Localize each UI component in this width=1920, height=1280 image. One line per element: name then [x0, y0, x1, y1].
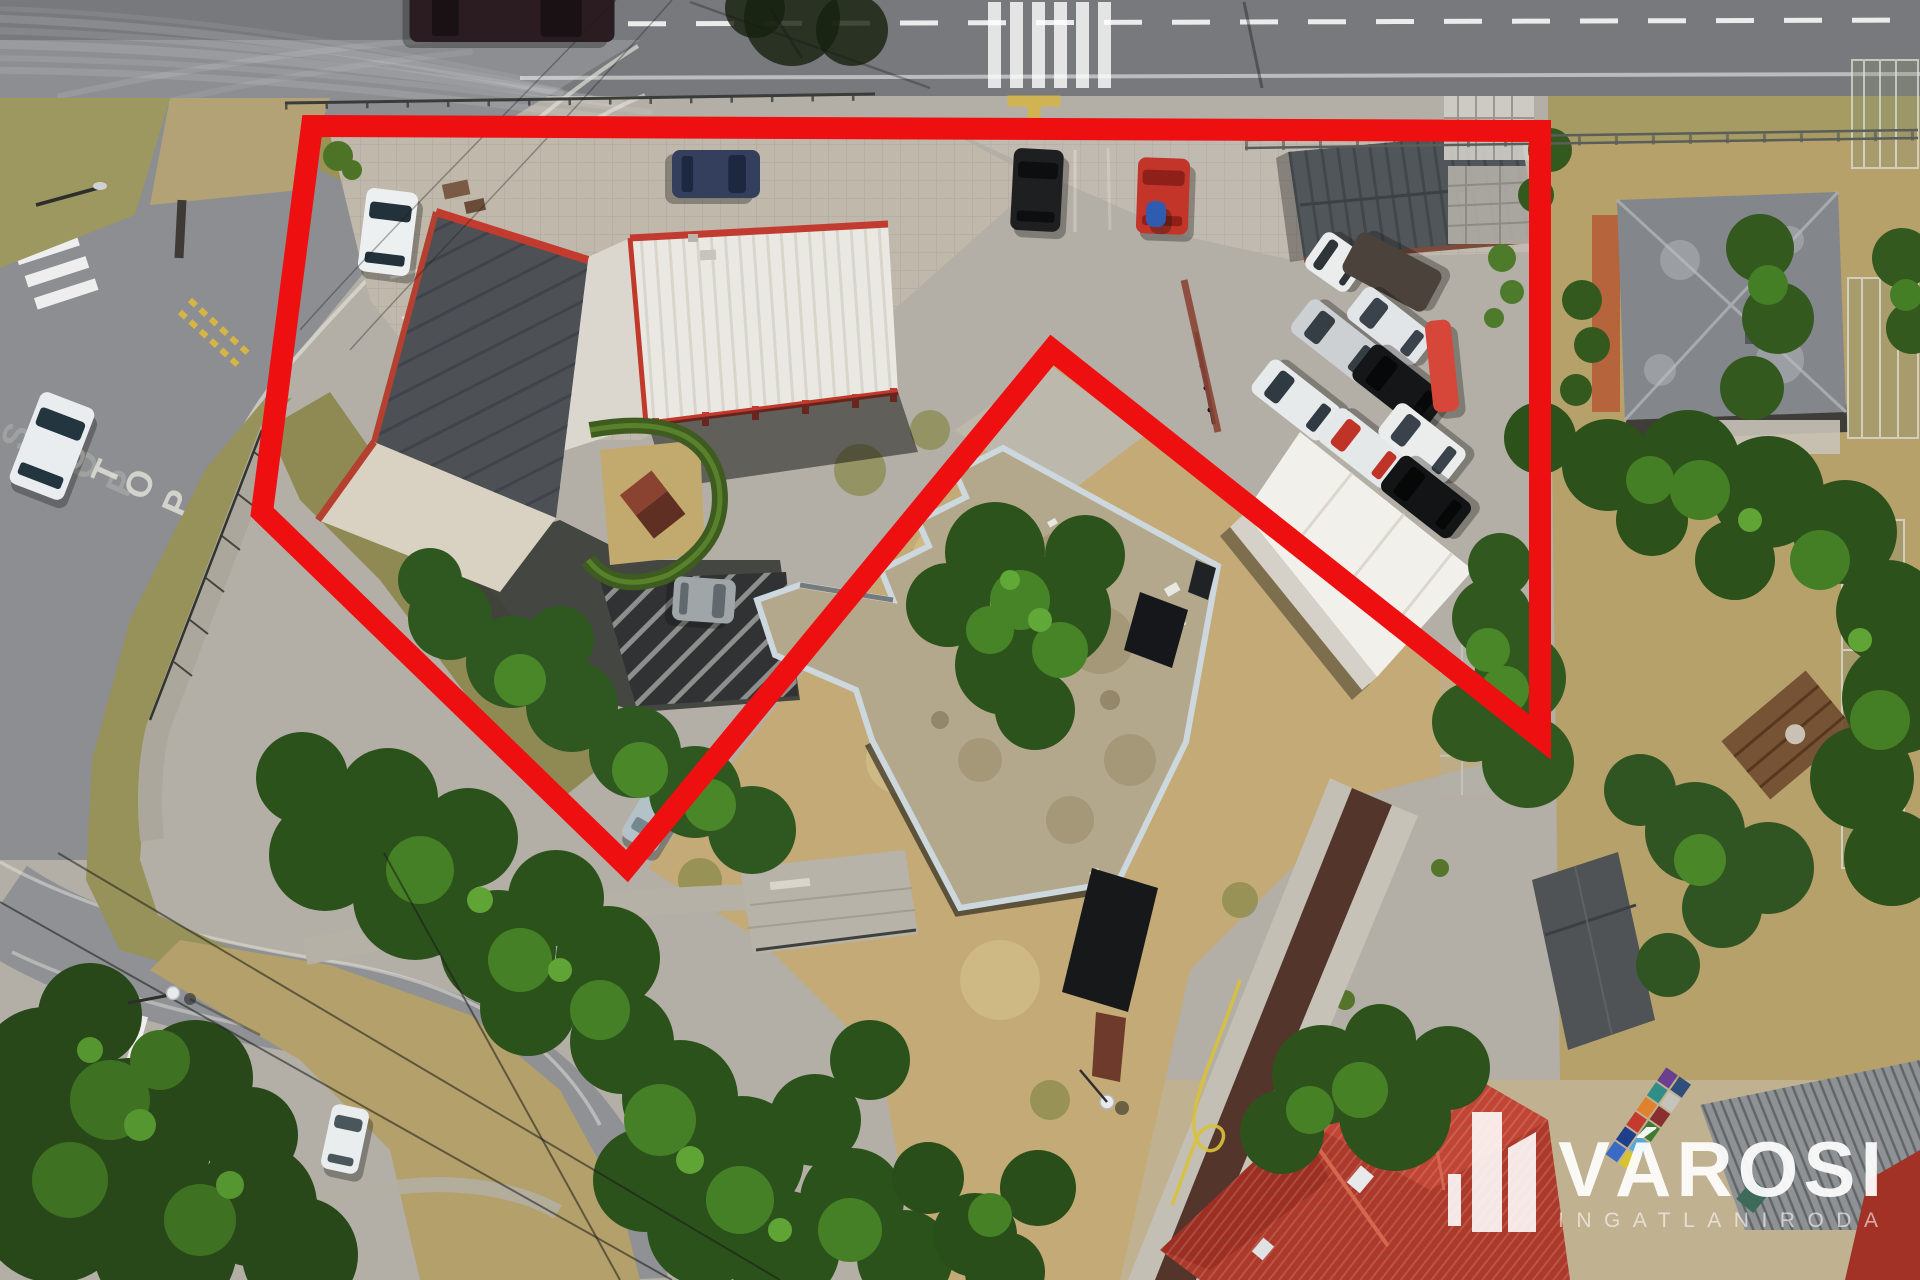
car-dark-top-road	[403, 0, 615, 48]
scaffold-stack	[1444, 96, 1534, 244]
varosi-logo-title: VÁROSI	[1558, 1125, 1887, 1213]
car-black-parking	[1010, 148, 1071, 240]
car-white-lot	[356, 187, 425, 284]
aerial-photo: STOP STOP	[0, 0, 1920, 1280]
van-navy-parking	[665, 150, 760, 204]
varosi-logo-subtitle: INGATLANIRODA	[1558, 1209, 1890, 1232]
aerial-photo-canvas: STOP STOP	[0, 0, 1920, 1280]
car-grey-hatch	[664, 575, 736, 630]
